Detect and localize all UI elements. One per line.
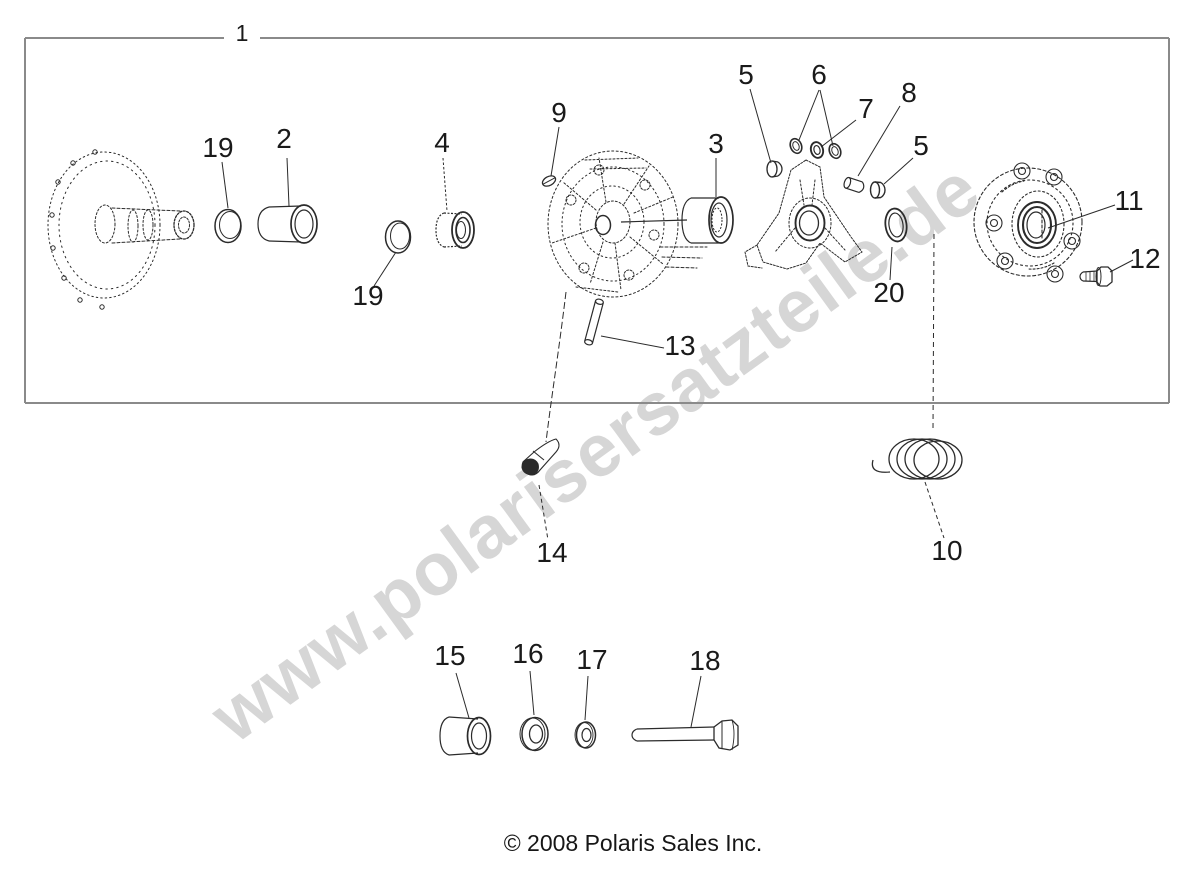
part-roller-5-upper [767,161,782,177]
part-bushing-3 [682,197,733,243]
part-bolt-12 [1080,267,1112,286]
part-bushing-2 [258,205,317,243]
part-spacer-15 [440,717,491,755]
part-spider [745,160,862,269]
part-ring-20 [883,207,908,243]
leader-lines [222,89,1133,727]
part-fixed-sheave [48,150,194,309]
part-pin-13 [584,298,604,345]
part-spring-10 [872,439,962,479]
callout-17: 17 [576,644,607,675]
callout-6: 6 [811,59,827,90]
callout-11: 11 [1114,185,1143,216]
part-bushing-4 [436,212,474,248]
callout-2: 2 [276,123,292,154]
part-cover-plate-11 [974,163,1082,282]
part-weight-14 [522,439,559,475]
callout-14: 14 [536,537,567,568]
callout-16: 16 [512,638,543,669]
part-pin-8 [843,177,865,194]
callout-5-upper: 5 [738,59,754,90]
callout-15: 15 [434,640,465,671]
part-ring-19-right [386,221,411,253]
part-ring-7 [809,141,825,160]
part-movable-sheave-housing [548,151,707,297]
callout-8: 8 [901,77,917,108]
parts-diagram-page: www.polarisersatzteile.de [0,0,1192,878]
callout-labels: 1 19 2 4 19 9 3 13 5 6 7 8 5 20 11 12 10… [202,20,1160,676]
callout-3: 3 [708,128,724,159]
callout-19-left: 19 [202,132,233,163]
part-washer-17 [575,722,596,748]
callout-12: 12 [1129,243,1160,274]
part-roller-5-right [871,182,886,198]
part-ring-19-left [215,210,241,243]
copyright-text: © 2008 Polaris Sales Inc. [504,830,763,857]
part-screw-9 [541,174,558,189]
exploded-parts-drawing: 1 19 2 4 19 9 3 13 5 6 7 8 5 20 11 12 10… [0,0,1192,878]
callout-10: 10 [931,535,962,566]
alignment-line-3 [621,220,687,222]
part-washer-16 [520,718,548,751]
callout-19-right: 19 [352,280,383,311]
callout-4: 4 [434,127,450,158]
part-bolt-18 [632,720,738,750]
part-ring-6-right [827,142,843,160]
callout-13: 13 [664,330,695,361]
callout-1: 1 [236,20,249,46]
part-ring-6-left [788,137,804,155]
callout-7: 7 [858,93,874,124]
callout-5-right: 5 [913,130,929,161]
callout-20: 20 [873,277,904,308]
callout-18: 18 [689,645,720,676]
callout-9: 9 [551,97,567,128]
